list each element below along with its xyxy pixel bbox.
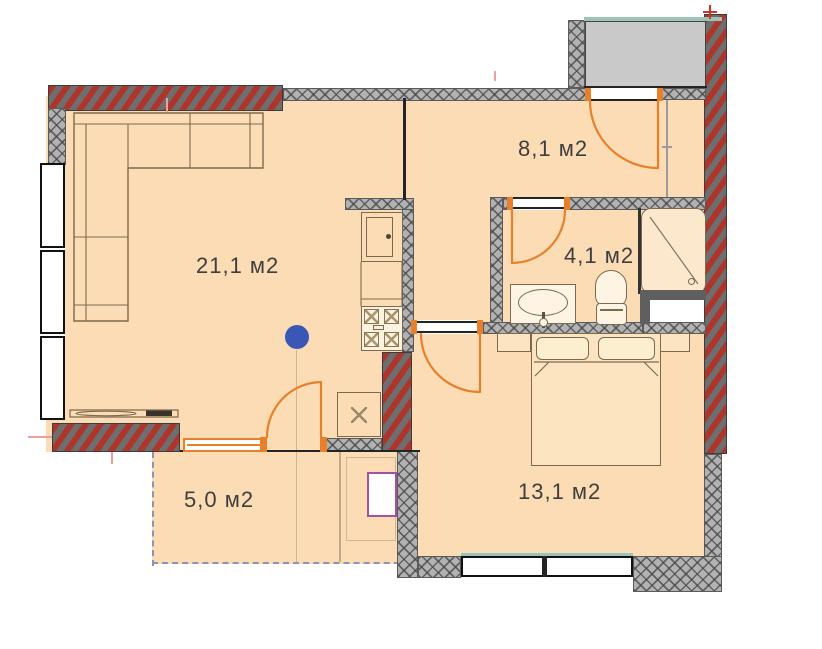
duct-niche-wall-left [640, 290, 650, 324]
wall-bedroom-bottom-left [418, 556, 461, 578]
pillow-right [598, 337, 655, 360]
dimension-tick [494, 71, 496, 81]
hallway-area-label: 8,1 м2 [518, 136, 588, 162]
wall-top [283, 88, 588, 101]
bathroom-jamb-left [507, 197, 513, 210]
cabinet-x-mark [351, 407, 367, 423]
hallway-closet-tick [662, 146, 672, 148]
nightstand-right [659, 333, 690, 352]
living-window-mullion-2 [40, 332, 65, 338]
wall-bathroom-left [490, 197, 503, 334]
bedroom-window [461, 556, 633, 577]
partition-line-living-hallway [403, 98, 406, 200]
hallway-closet-line [666, 100, 668, 197]
toilet-bowl [595, 270, 627, 307]
axis-cross-mark [709, 5, 711, 19]
balcony-divider-line [339, 452, 341, 562]
duct-niche [650, 300, 704, 322]
pillow-left [536, 337, 589, 360]
stove-burner [364, 332, 379, 347]
sink-tap-knob [539, 318, 548, 327]
stair-landing [585, 21, 706, 87]
load-bearing-wall-right [704, 14, 727, 454]
dimension-tick [111, 452, 113, 464]
bedroom-opening-line-top [414, 321, 480, 323]
dimension-tick [28, 436, 52, 438]
load-bearing-wall-bottom-left [52, 423, 180, 452]
balcony-door-jamb-right [320, 437, 327, 452]
shower [641, 208, 706, 294]
utility-box [367, 472, 397, 517]
bathroom-opening-line-top [510, 197, 568, 199]
entrance-jamb-right [657, 88, 663, 101]
stove-burner [384, 309, 399, 324]
toilet-tank-line [600, 309, 623, 311]
balcony-dashed-edge-left [152, 452, 154, 566]
bedroom-opening-line-bottom [414, 331, 480, 333]
wall-balcony-bedroom-left [397, 450, 418, 578]
stove-burner [364, 309, 379, 324]
landing-left-wall [568, 20, 585, 88]
wall-top-left-corner [48, 108, 66, 165]
wall-bedroom-bottom-right [633, 556, 722, 592]
balcony-door-jamb-left [260, 437, 267, 452]
corridor-floor [404, 196, 504, 338]
wall-top-right-of-door [660, 88, 706, 100]
bedroom-area-label: 13,1 м2 [518, 479, 601, 505]
entrance-jamb-left [585, 88, 591, 101]
balcony-window-inner-line [187, 444, 263, 446]
bedroom-jamb-left [411, 320, 417, 334]
toilet-tank [596, 303, 627, 325]
location-marker [285, 325, 309, 349]
balcony-dashed-edge-bottom [152, 562, 420, 564]
floor-plan: 21,1 м2 8,1 м2 4,1 м2 13,1 м2 5,0 м2 [0, 0, 822, 649]
load-bearing-column-middle [382, 352, 412, 452]
dimension-tick [166, 98, 168, 112]
section-line [296, 350, 297, 562]
shower-drain [688, 278, 695, 285]
bedroom-jamb-right [477, 320, 483, 334]
bedroom-window-divider [542, 556, 547, 577]
living-window-mullion-1 [40, 246, 65, 252]
living-window-left [40, 163, 65, 420]
living-room-area-label: 21,1 м2 [196, 253, 279, 279]
fridge-handle-dot [386, 234, 391, 239]
bathroom-area-label: 4,1 м2 [564, 243, 634, 269]
bathroom-jamb-right [564, 197, 570, 210]
balcony-area-label: 5,0 м2 [184, 487, 254, 513]
console-tv-block [146, 410, 172, 416]
stove-burner [384, 332, 399, 347]
nightstand-left [497, 333, 531, 352]
stove-center-knob [373, 325, 384, 330]
entrance-threshold [588, 99, 660, 101]
bathroom-opening-line-bottom [510, 207, 568, 209]
